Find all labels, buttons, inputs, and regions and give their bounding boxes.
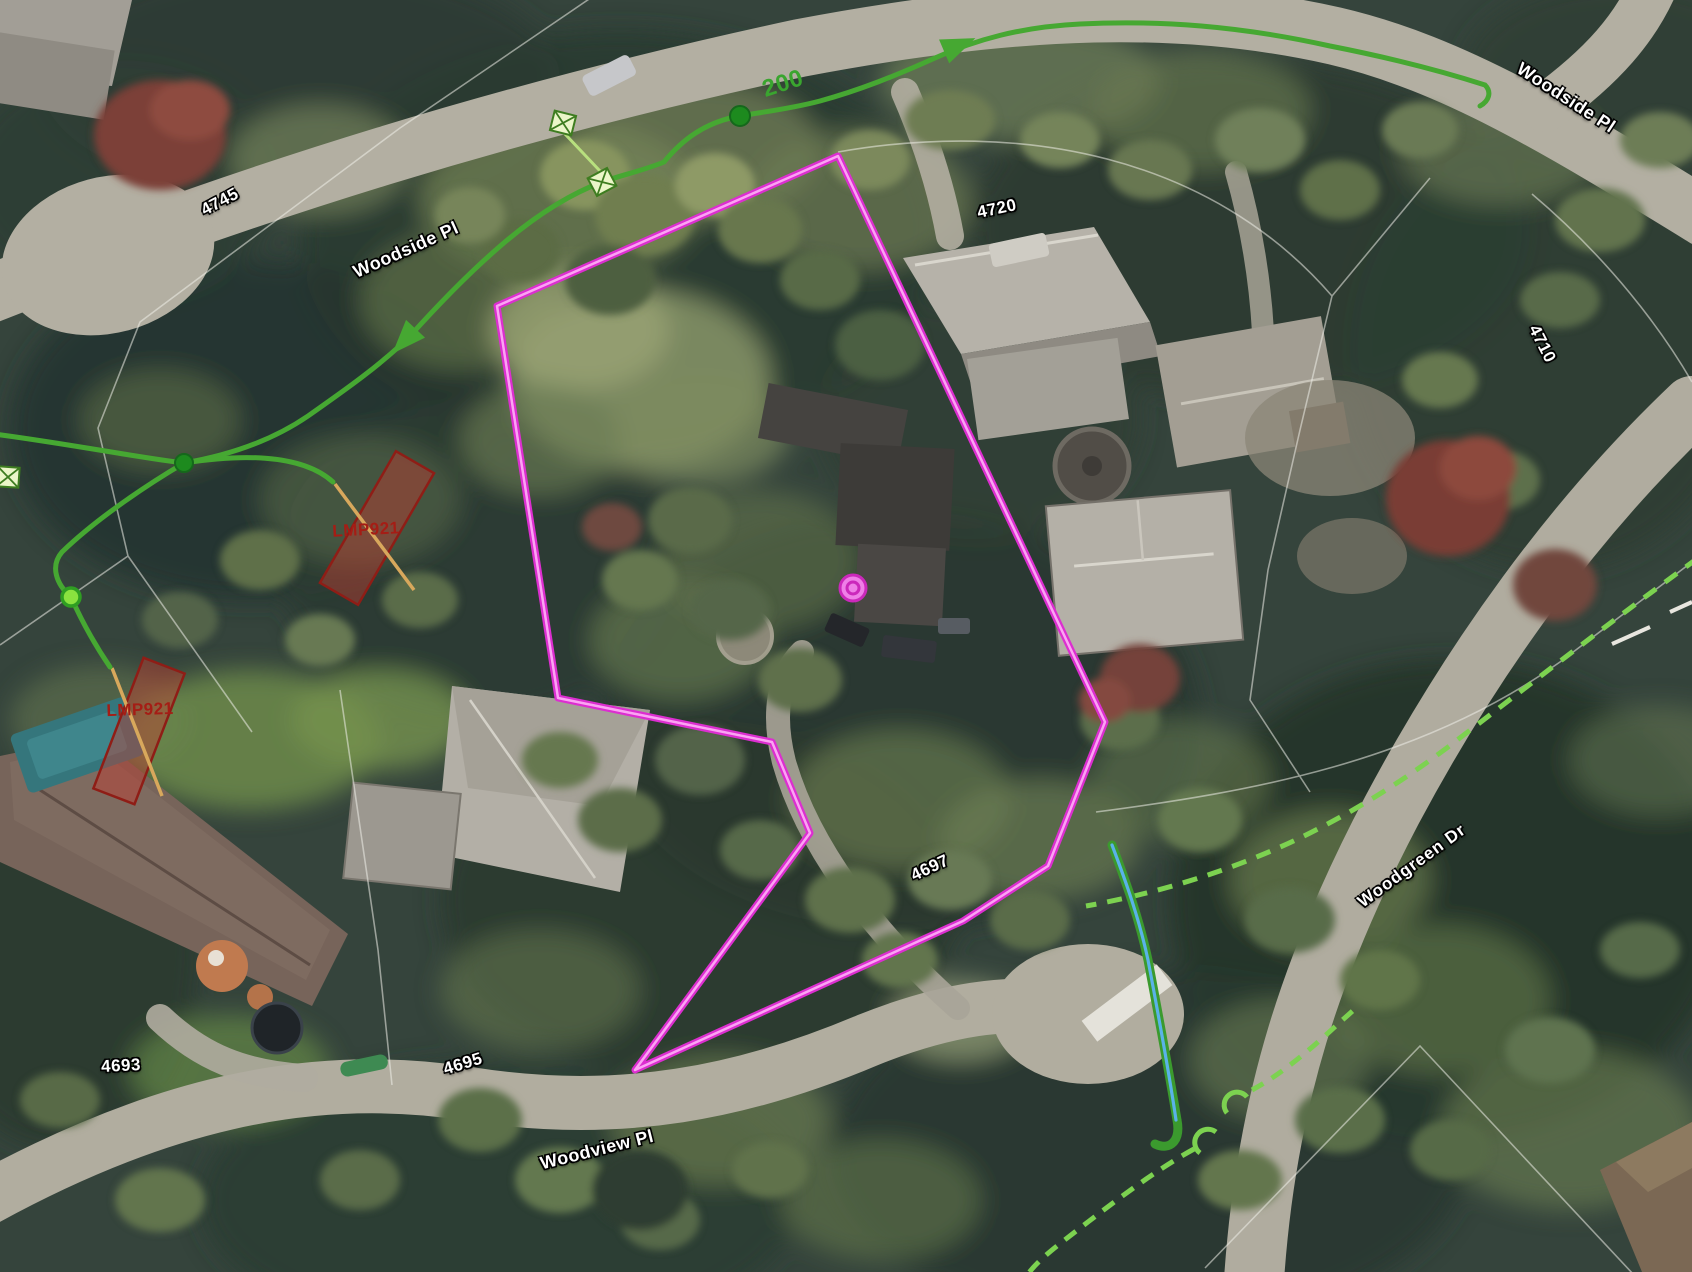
utility-node-ring [62, 588, 80, 606]
gis-overlay [0, 0, 1692, 1272]
plan-label-lmp921-east: LMP921 [332, 518, 400, 541]
map-viewport[interactable]: Woodside Pl Woodside Pl Woodview Pl Wood… [0, 0, 1692, 1272]
utility-node [730, 106, 750, 126]
plan-area-lmp921-west [93, 658, 184, 804]
utility-line-200 [0, 23, 1489, 667]
plan-label-lmp921-west: LMP921 [106, 699, 174, 721]
trail-end-hook [1224, 1092, 1247, 1113]
selected-point-marker[interactable] [840, 575, 866, 601]
survey-markers [0, 111, 616, 488]
survey-marker-icon [588, 168, 617, 196]
marker-leader-line [565, 134, 600, 171]
survey-marker-icon [550, 111, 576, 136]
parcel-lines [0, 0, 1692, 1272]
plan-area-lmp921-group [93, 451, 434, 804]
trail-dashed-lines [1028, 558, 1692, 1272]
selected-parcel-boundary[interactable] [497, 156, 1105, 1070]
creek-line [1112, 845, 1178, 1146]
trail-end-hook [1195, 1129, 1216, 1153]
survey-marker-icon [0, 466, 20, 487]
utility-node [175, 454, 193, 472]
lot-number-4693: 4693 [101, 1055, 142, 1077]
